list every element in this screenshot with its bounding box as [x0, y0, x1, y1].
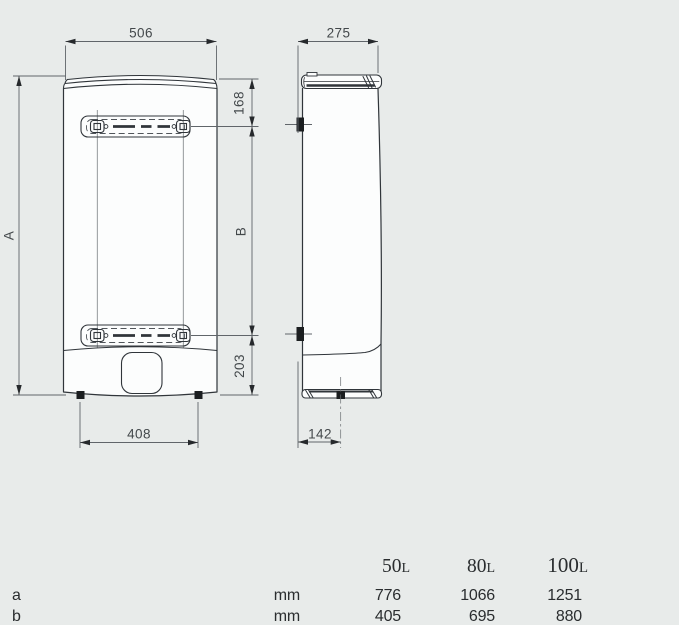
- capacity-value: 50: [382, 556, 402, 577]
- side-top-tab: [307, 73, 317, 77]
- value-b-100l: 880: [556, 609, 582, 625]
- front-body-fill: [64, 76, 218, 397]
- dim-label-142: 142: [308, 427, 332, 442]
- row-label-b: b: [12, 609, 21, 625]
- capacity-header-50l: 50L: [382, 557, 410, 579]
- capacity-header-100l: 100L: [547, 555, 588, 578]
- dim-label-506: 506: [129, 26, 153, 41]
- capacity-value: 100: [547, 553, 579, 577]
- dim-label-203: 203: [232, 354, 247, 378]
- product-dimension-diagram: 506 A 168 B 203: [0, 0, 679, 625]
- value-a-80l: 1066: [460, 588, 495, 604]
- side-body-fill: [303, 89, 382, 391]
- side-view: [285, 73, 382, 449]
- dim-label-408: 408: [127, 427, 151, 442]
- capacity-unit: L: [486, 561, 495, 576]
- dim-label-168: 168: [232, 91, 247, 115]
- dim-label-A: A: [2, 231, 17, 240]
- dim-front-width-top: 506: [66, 26, 217, 81]
- dim-label-B: B: [234, 227, 249, 236]
- value-b-80l: 695: [469, 609, 495, 625]
- unit-cell-a: mm: [274, 588, 300, 604]
- dim-label-275: 275: [327, 26, 351, 41]
- technical-drawing: 506 A 168 B 203: [0, 0, 679, 545]
- capacity-header-80l: 80L: [467, 557, 495, 579]
- front-foot-left: [77, 391, 85, 399]
- unit-cell-b: mm: [274, 609, 300, 625]
- wall-bracket-mark-bottom: [297, 327, 305, 341]
- capacity-value: 80: [467, 556, 487, 577]
- value-a-50l: 776: [375, 588, 401, 604]
- dim-total-height-A: A: [2, 76, 67, 395]
- front-view: [64, 76, 218, 400]
- dim-feet-spacing: 408: [80, 402, 198, 448]
- value-b-50l: 405: [375, 609, 401, 625]
- capacity-unit: L: [401, 561, 410, 576]
- front-foot-right: [195, 391, 203, 399]
- capacity-unit: L: [579, 560, 588, 576]
- row-label-a: a: [12, 588, 21, 604]
- front-display-panel: [122, 353, 163, 394]
- value-a-100l: 1251: [547, 588, 582, 604]
